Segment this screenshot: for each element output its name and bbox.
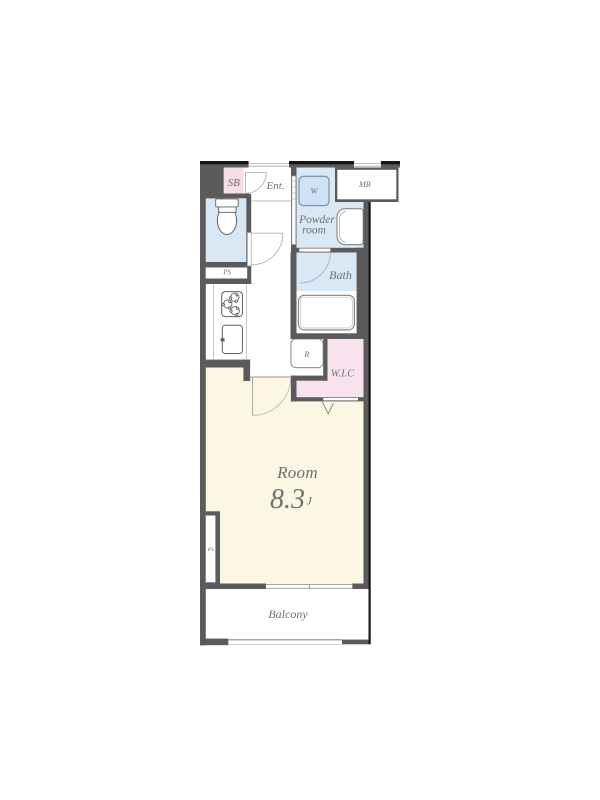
svg-text:PS: PS xyxy=(207,547,214,553)
svg-text:room: room xyxy=(302,225,326,237)
svg-text:MB: MB xyxy=(358,180,371,189)
svg-text:Bath: Bath xyxy=(329,268,352,282)
svg-text:Ent.: Ent. xyxy=(265,180,284,192)
svg-text:8.3: 8.3 xyxy=(270,484,305,515)
svg-text:J: J xyxy=(307,494,313,508)
svg-text:SB: SB xyxy=(228,177,241,189)
svg-text:PS: PS xyxy=(222,269,231,277)
svg-text:R: R xyxy=(303,349,310,359)
svg-text:Balcony: Balcony xyxy=(268,607,308,621)
svg-text:Room: Room xyxy=(276,463,318,482)
svg-text:W.I.C: W.I.C xyxy=(331,369,356,380)
svg-text:W: W xyxy=(310,185,318,195)
